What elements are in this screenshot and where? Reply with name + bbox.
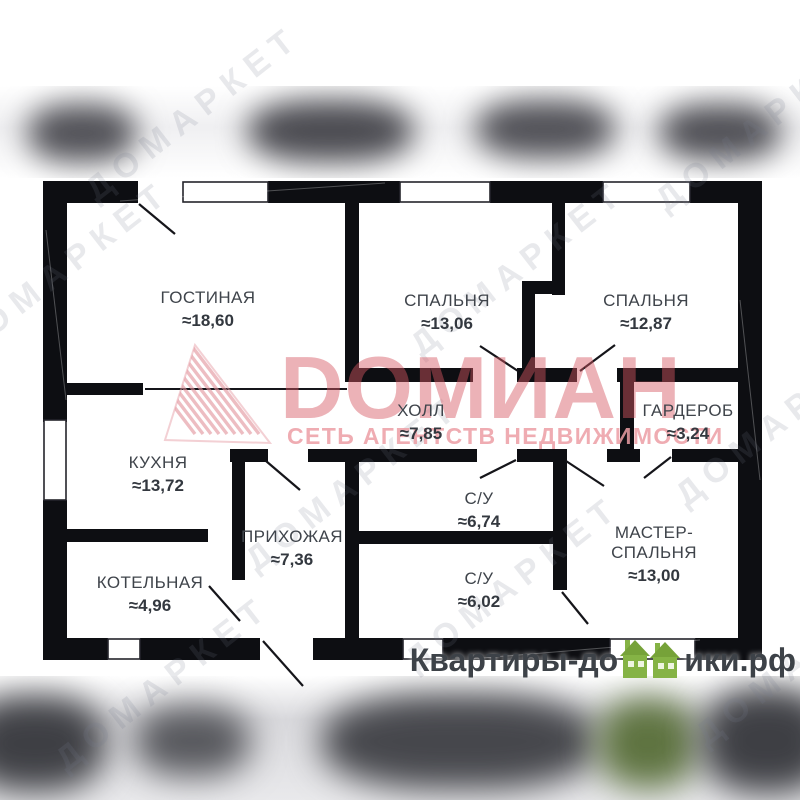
window	[603, 182, 690, 202]
door-swing	[562, 592, 588, 624]
door-swing	[480, 460, 516, 478]
door-swing	[209, 586, 240, 621]
floorplan-image: ДОМАРКЕТ ДОМАРКЕТ ДОМАРКЕТ ДОМАРКЕТ ДОМА…	[0, 0, 800, 800]
door-swing	[566, 461, 604, 486]
door-swing	[480, 346, 518, 371]
green-houses-icon	[619, 634, 683, 680]
door-swing	[644, 457, 671, 478]
site-watermark: Квартиры-до ики.рф	[410, 634, 796, 679]
site-watermark-prefix: Квартиры-до	[410, 642, 618, 679]
door-swing	[139, 204, 175, 234]
door-swing	[580, 345, 615, 371]
window	[400, 182, 490, 202]
floorplan-drawing	[0, 0, 800, 800]
site-watermark-suffix: ики.рф	[684, 642, 796, 679]
window	[108, 639, 140, 659]
entrance-door-swing	[263, 641, 303, 686]
door-swing	[266, 461, 300, 490]
window	[44, 420, 66, 500]
